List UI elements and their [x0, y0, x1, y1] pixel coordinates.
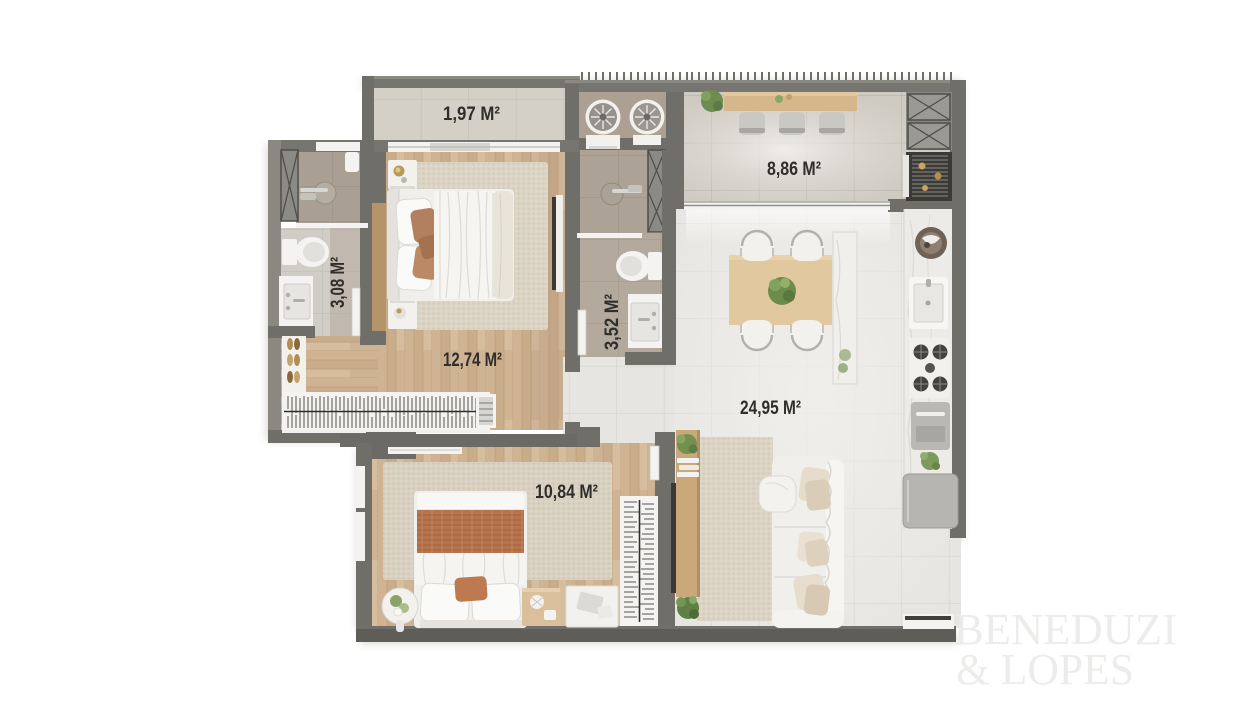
svg-text:3,52 M²: 3,52 M²: [602, 294, 623, 350]
svg-text:12,74 M²: 12,74 M²: [443, 350, 502, 371]
svg-text:1,97 M²: 1,97 M²: [443, 104, 500, 125]
svg-text:10,84 M²: 10,84 M²: [535, 482, 598, 503]
svg-text:3,08 M²: 3,08 M²: [328, 257, 349, 308]
svg-text:& LOPES: & LOPES: [956, 645, 1134, 694]
svg-text:8,86 M²: 8,86 M²: [767, 159, 821, 180]
svg-text:24,95 M²: 24,95 M²: [740, 398, 801, 419]
